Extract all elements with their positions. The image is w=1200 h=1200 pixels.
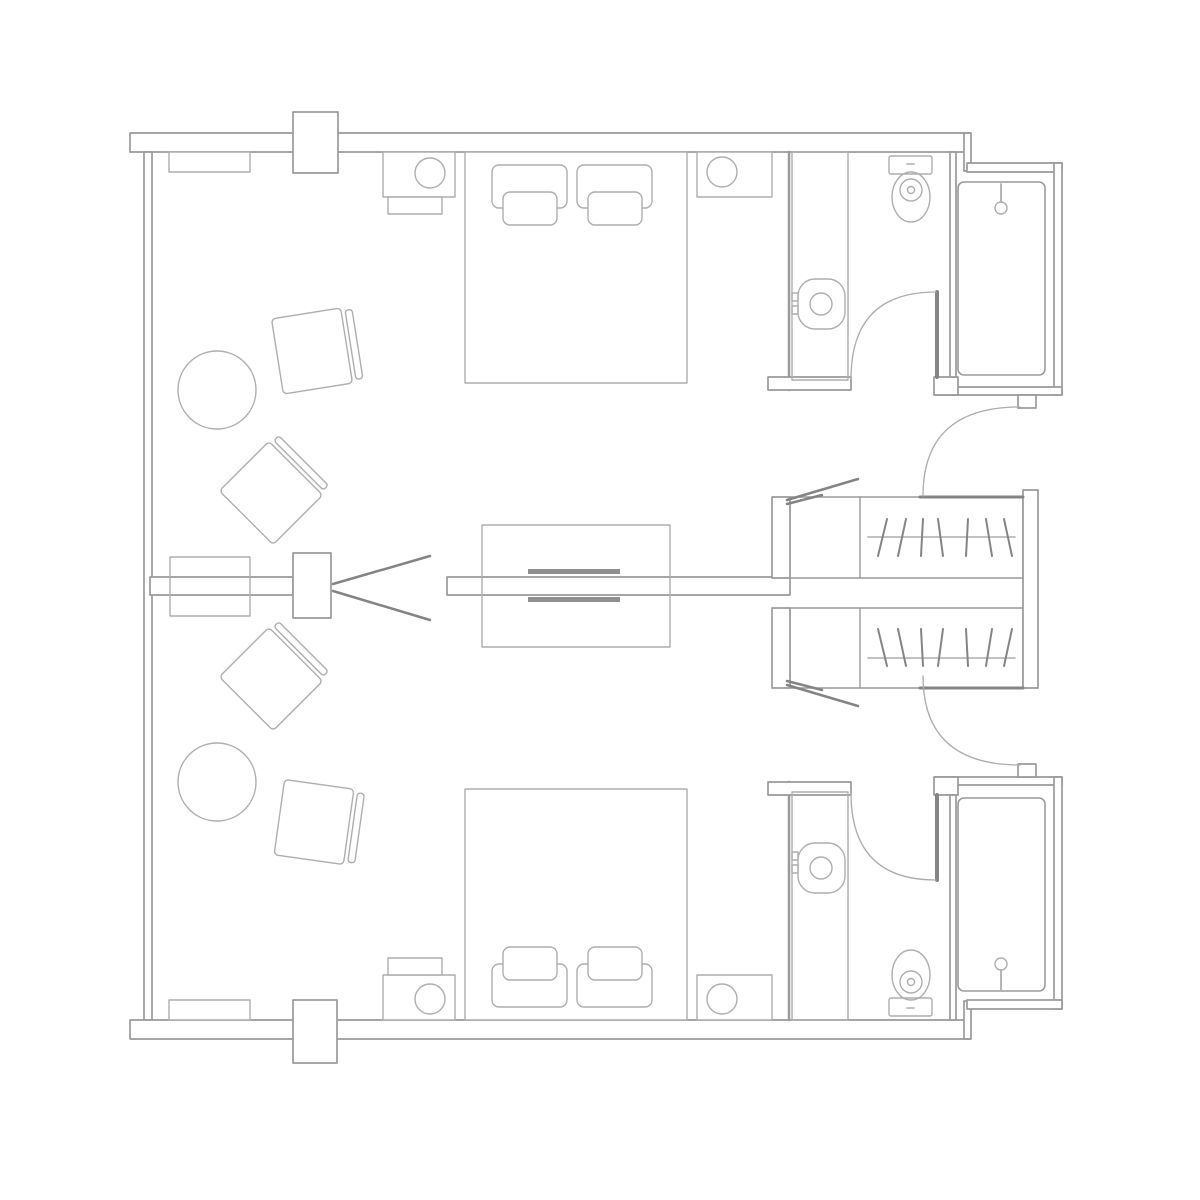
- toilet-lower: [889, 950, 932, 1016]
- toilet-seat-ring: [900, 971, 922, 993]
- hanger-tick: [898, 629, 906, 666]
- sink-faucet: [792, 306, 798, 314]
- armchair-seat: [219, 627, 322, 730]
- armchair-4: [274, 779, 365, 866]
- hanger-tick: [966, 629, 968, 666]
- shower-tray: [958, 182, 1045, 375]
- shower-head: [995, 958, 1007, 970]
- window-sill-bottom: [169, 1000, 250, 1020]
- closet-cap-lower: [772, 608, 790, 688]
- hanger-tick: [921, 629, 923, 666]
- right-wall-upper: [1054, 163, 1062, 395]
- closet-cap-upper: [772, 497, 790, 578]
- hanger-tick: [921, 519, 923, 556]
- floor-plan-canvas: [0, 0, 1200, 1200]
- lamp-right-lower: [707, 984, 737, 1014]
- shower-lower: [958, 798, 1045, 991]
- armchair-back: [348, 793, 365, 863]
- column-bottom: [293, 1000, 337, 1063]
- bath-stub-lower: [934, 777, 958, 795]
- toilet-drain: [908, 187, 915, 194]
- demising-wall-left: [150, 577, 293, 595]
- toilet-tank: [889, 156, 932, 174]
- sink-faucet: [792, 293, 798, 301]
- closet-back-wall: [1023, 490, 1038, 688]
- armchair-1: [271, 306, 363, 394]
- bath-stub-upper: [934, 377, 958, 395]
- pillow-inner: [588, 947, 642, 980]
- top-wall: [130, 133, 970, 152]
- armchair-seat: [274, 779, 354, 864]
- bath-entry-wall-upper: [768, 377, 851, 390]
- shower-upper: [958, 182, 1045, 375]
- sink-faucet: [792, 852, 798, 860]
- armchair-3: [219, 620, 330, 731]
- sink-drain-ring: [810, 857, 832, 879]
- hanger-tick: [1004, 629, 1012, 666]
- floor-plan-page: [0, 0, 1200, 1200]
- vanity-counter-lower: [792, 792, 848, 1020]
- demising-wall-right: [447, 577, 790, 595]
- toilet-upper: [889, 156, 932, 222]
- sink-drain-ring: [810, 293, 832, 315]
- connecting-door-leaf-lower: [333, 591, 430, 620]
- hanger-tick: [938, 629, 943, 666]
- window-sill-top: [169, 152, 250, 172]
- toilet-drain: [908, 979, 915, 986]
- toilet-seat-ring: [900, 179, 922, 201]
- toilet-tank: [889, 998, 932, 1016]
- armchair-back: [274, 436, 328, 490]
- bath-door-arc-upper: [851, 292, 936, 379]
- tv-lower: [528, 597, 620, 602]
- entry-jamb-lower: [1018, 764, 1036, 777]
- bottom-wall: [130, 1020, 970, 1039]
- sink-upper: [792, 279, 845, 329]
- pillow-inner: [503, 192, 557, 225]
- sink-basin: [798, 279, 845, 329]
- armchair-back: [345, 309, 363, 379]
- armchair-back: [274, 622, 328, 676]
- round-table-lower: [178, 743, 256, 821]
- column-mid: [293, 553, 331, 618]
- hanger-tick: [878, 629, 887, 666]
- sink-basin: [798, 843, 845, 893]
- hanger-tick: [966, 519, 968, 556]
- bath-shower-wall-lower: [950, 795, 956, 1020]
- shower-floor-strip-lower: [967, 1000, 1062, 1009]
- sink-faucet: [792, 865, 798, 873]
- hanger-tick: [986, 629, 992, 666]
- shower-tray: [958, 798, 1045, 991]
- shower-head: [995, 202, 1007, 214]
- pillow-inner: [503, 947, 557, 980]
- column-top: [293, 112, 338, 173]
- bath-entry-wall-lower: [768, 782, 851, 795]
- armchair-seat: [271, 308, 352, 394]
- shower-roof-strip-upper: [967, 163, 1062, 172]
- armchair-2: [219, 434, 330, 545]
- connecting-door-leaf-upper: [333, 556, 430, 584]
- nightstand-drawer-upper: [388, 197, 442, 214]
- round-table-upper: [178, 351, 256, 429]
- sink-lower: [792, 843, 845, 893]
- tv-upper: [528, 569, 620, 574]
- entry-door-arc-upper: [923, 407, 1020, 496]
- pillow-inner: [588, 192, 642, 225]
- vanity-counter-upper: [792, 152, 848, 380]
- lamp-right-upper: [707, 157, 737, 187]
- right-wall-lower: [1054, 777, 1062, 1009]
- lamp-left-lower: [415, 984, 445, 1014]
- lamp-left-upper: [415, 158, 445, 188]
- entry-jamb-upper: [1018, 395, 1036, 408]
- armchair-seat: [219, 441, 322, 544]
- nightstand-drawer-lower: [388, 958, 442, 975]
- bath-door-arc-lower: [851, 793, 936, 880]
- bath-shower-wall-upper: [950, 152, 956, 377]
